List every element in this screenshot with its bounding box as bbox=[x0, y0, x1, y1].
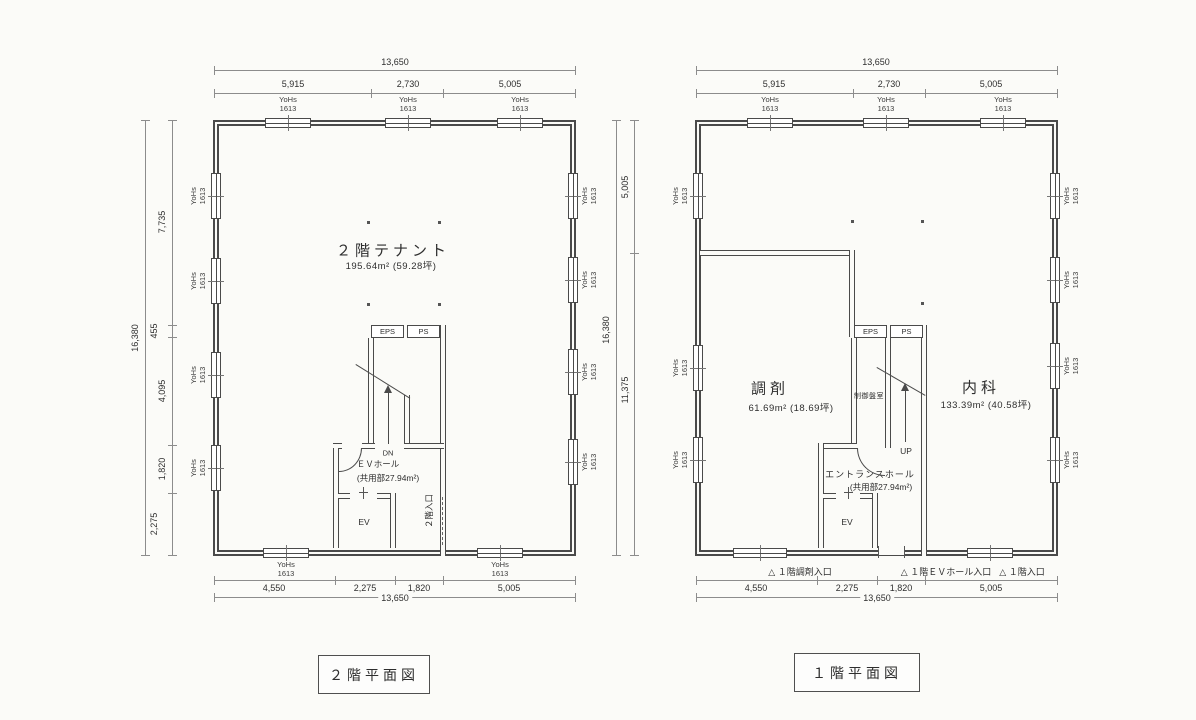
2f-dim-left-total: 16,380 bbox=[130, 324, 140, 352]
1f-pharmacy-area: 61.69m² (18.69坪) bbox=[748, 400, 833, 414]
1f-entrance-note: △ １階ＥＶホール入口 bbox=[901, 565, 991, 578]
2f-caption: ２階平面図 bbox=[318, 655, 430, 694]
1f-dim-top-seg: 5,915 bbox=[763, 79, 786, 89]
1f-pharmacy-entrance-door bbox=[733, 548, 787, 558]
1f-ev-hall-entrance-opening bbox=[878, 549, 904, 555]
2f-entrance-door-dash bbox=[442, 497, 443, 545]
1f-dim-left-total-line bbox=[616, 120, 617, 556]
2f-dim-top-total-line bbox=[214, 70, 576, 71]
2f-window bbox=[568, 257, 578, 303]
1f-entrance-hall-area: (共用部27.94m²) bbox=[850, 481, 912, 493]
2f-ev-hall-area: (共用部27.94m²) bbox=[357, 472, 419, 484]
window-label: YoHs1613 bbox=[189, 272, 207, 290]
1f-window bbox=[747, 118, 793, 128]
1f-internal-medicine-name: 内科 bbox=[962, 377, 1000, 398]
opening-tick bbox=[904, 546, 905, 558]
1f-ps-shaft: PS bbox=[890, 325, 923, 338]
column-mark bbox=[921, 302, 924, 305]
2f-ev-wall bbox=[390, 493, 396, 548]
2f-eps-shaft: EPS bbox=[371, 325, 404, 338]
window-label: YoHs1613 bbox=[580, 271, 598, 289]
2f-ev-door-mark bbox=[359, 492, 368, 493]
1f-ev-label: EV bbox=[841, 517, 852, 527]
2f-dim-bottom-seg: 5,005 bbox=[498, 583, 521, 593]
1f-pharmacy-wall bbox=[700, 250, 853, 256]
2f-dim-bottom-seg-line bbox=[214, 580, 576, 581]
window-label: YoHs1613 bbox=[268, 560, 304, 578]
column-mark bbox=[921, 220, 924, 223]
2f-stair-wall bbox=[404, 395, 410, 448]
2f-window bbox=[265, 118, 311, 128]
1f-dim-bottom-seg: 1,820 bbox=[890, 583, 913, 593]
2f-dim-top-seg: 2,730 bbox=[397, 79, 420, 89]
2f-window bbox=[497, 118, 543, 128]
opening-tick bbox=[878, 546, 879, 558]
2f-core-wall bbox=[368, 338, 374, 448]
2f-dim-left-seg: 1,820 bbox=[157, 458, 167, 481]
window-label: YoHs1613 bbox=[868, 95, 904, 113]
1f-core-wall bbox=[885, 338, 891, 448]
window-label: YoHs1613 bbox=[1062, 357, 1080, 375]
2f-ps-shaft: PS bbox=[407, 325, 440, 338]
1f-window bbox=[693, 345, 703, 391]
1f-window bbox=[693, 437, 703, 483]
window-label: YoHs1613 bbox=[671, 451, 689, 469]
window-label: YoHs1613 bbox=[270, 95, 306, 113]
2f-outer-wall bbox=[213, 120, 576, 556]
window-label: YoHs1613 bbox=[580, 187, 598, 205]
1f-dim-top-seg: 5,005 bbox=[980, 79, 1003, 89]
1f-dim-top-total-line bbox=[696, 70, 1058, 71]
1f-dim-top-total: 13,650 bbox=[862, 57, 890, 67]
2f-entrance-label: ２階入口 bbox=[423, 494, 435, 528]
1f-dim-bottom-total: 13,650 bbox=[860, 593, 894, 603]
1f-stair-arrow bbox=[905, 390, 906, 442]
window-label: YoHs1613 bbox=[580, 363, 598, 381]
1f-ev-wall bbox=[823, 493, 836, 499]
2f-dim-top-seg-line bbox=[214, 93, 576, 94]
1f-dim-top-seg: 2,730 bbox=[878, 79, 901, 89]
1f-stair-up-label: UP bbox=[900, 446, 912, 456]
1f-window bbox=[1050, 173, 1060, 219]
2f-dim-left-seg: 455 bbox=[149, 323, 159, 338]
1f-dim-top-seg-line bbox=[696, 93, 1058, 94]
1f-window bbox=[1050, 343, 1060, 389]
2f-dim-top-seg: 5,915 bbox=[282, 79, 305, 89]
1f-core-wall bbox=[921, 325, 927, 556]
2f-window bbox=[263, 548, 309, 558]
2f-tenant-area: 195.64m² (59.28坪) bbox=[346, 258, 437, 272]
1f-window bbox=[863, 118, 909, 128]
1f-window bbox=[1050, 257, 1060, 303]
2f-dim-bottom-seg: 1,820 bbox=[408, 583, 431, 593]
2f-ev-label: EV bbox=[358, 517, 369, 527]
2f-dim-top-total: 13,650 bbox=[381, 57, 409, 67]
window-label: YoHs1613 bbox=[189, 366, 207, 384]
1f-window bbox=[980, 118, 1026, 128]
column-mark bbox=[438, 303, 441, 306]
2f-dim-left-seg-line bbox=[172, 120, 173, 556]
1f-entrance-note: △ １階入口 bbox=[999, 565, 1044, 578]
2f-window bbox=[211, 173, 221, 219]
1f-pharmacy-name: 調剤 bbox=[751, 378, 789, 399]
1f-dim-bottom-seg: 2,275 bbox=[836, 583, 859, 593]
1f-control-room-label: 制御盤室 bbox=[854, 391, 884, 401]
2f-ev-wall bbox=[338, 493, 350, 499]
2f-dim-bottom-seg: 2,275 bbox=[354, 583, 377, 593]
column-mark bbox=[367, 303, 370, 306]
2f-ev-door-mark bbox=[363, 487, 364, 499]
column-mark bbox=[851, 220, 854, 223]
2f-window bbox=[568, 173, 578, 219]
2f-window bbox=[211, 258, 221, 304]
1f-internal-medicine-area: 133.39m² (40.58坪) bbox=[941, 397, 1032, 411]
2f-hall-wall bbox=[362, 443, 375, 449]
1f-dim-left-seg: 5,005 bbox=[620, 176, 630, 199]
2f-dim-left-seg: 2,275 bbox=[149, 513, 159, 536]
window-label: YoHs1613 bbox=[985, 95, 1021, 113]
2f-window bbox=[568, 439, 578, 485]
1f-ev-wall bbox=[872, 493, 878, 548]
2f-window bbox=[211, 352, 221, 398]
1f-dim-bottom-seg: 4,550 bbox=[745, 583, 768, 593]
2f-stair-arrow-head bbox=[384, 385, 392, 393]
1f-window bbox=[693, 173, 703, 219]
window-label: YoHs1613 bbox=[1062, 451, 1080, 469]
2f-ev-hall-label: ＥＶホール bbox=[357, 458, 400, 470]
2f-dim-left-seg: 4,095 bbox=[157, 380, 167, 403]
window-label: YoHs1613 bbox=[580, 453, 598, 471]
window-label: YoHs1613 bbox=[189, 459, 207, 477]
2f-window bbox=[211, 445, 221, 491]
window-label: YoHs1613 bbox=[671, 187, 689, 205]
2f-core-wall bbox=[404, 443, 444, 449]
window-label: YoHs1613 bbox=[502, 95, 538, 113]
1f-dim-left-seg: 11,375 bbox=[620, 377, 630, 404]
1f-window bbox=[1050, 437, 1060, 483]
window-label: YoHs1613 bbox=[482, 560, 518, 578]
window-label: YoHs1613 bbox=[1062, 271, 1080, 289]
column-mark bbox=[438, 221, 441, 224]
2f-stair-arrow bbox=[388, 392, 389, 444]
2f-dim-top-seg: 5,005 bbox=[499, 79, 522, 89]
floor-plan-sheet: 13,650 5,915 2,730 5,005 16,380 7,735 45… bbox=[0, 0, 1196, 720]
2f-dim-left-seg: 7,735 bbox=[157, 211, 167, 234]
1f-eps-shaft: EPS bbox=[854, 325, 887, 338]
window-label: YoHs1613 bbox=[189, 187, 207, 205]
1f-entrance-hall-label: エントランスホール bbox=[825, 468, 915, 481]
window-label: YoHs1613 bbox=[752, 95, 788, 113]
1f-dim-left-seg-line bbox=[634, 120, 635, 556]
2f-dim-bottom-total: 13,650 bbox=[378, 593, 412, 603]
window-label: YoHs1613 bbox=[1062, 187, 1080, 205]
column-mark bbox=[367, 221, 370, 224]
2f-window bbox=[385, 118, 431, 128]
2f-window bbox=[477, 548, 523, 558]
1f-dim-left-total: 16,380 bbox=[601, 316, 611, 344]
1f-entrance-note: △ １階調剤入口 bbox=[768, 565, 831, 578]
2f-dim-bottom-seg: 4,550 bbox=[263, 583, 286, 593]
window-label: YoHs1613 bbox=[671, 359, 689, 377]
window-label: YoHs1613 bbox=[390, 95, 426, 113]
1f-pharmacy-wall bbox=[849, 250, 855, 337]
2f-dim-left-total-line bbox=[145, 120, 146, 556]
1f-dim-bottom-seg-line bbox=[696, 580, 1058, 581]
2f-window bbox=[568, 349, 578, 395]
1f-caption: １階平面図 bbox=[794, 653, 920, 692]
2f-stair-dn-label: DN bbox=[383, 449, 394, 458]
1f-stair-arrow-head bbox=[901, 383, 909, 391]
1f-main-entrance-door bbox=[967, 548, 1013, 558]
1f-dim-bottom-seg: 5,005 bbox=[980, 583, 1003, 593]
